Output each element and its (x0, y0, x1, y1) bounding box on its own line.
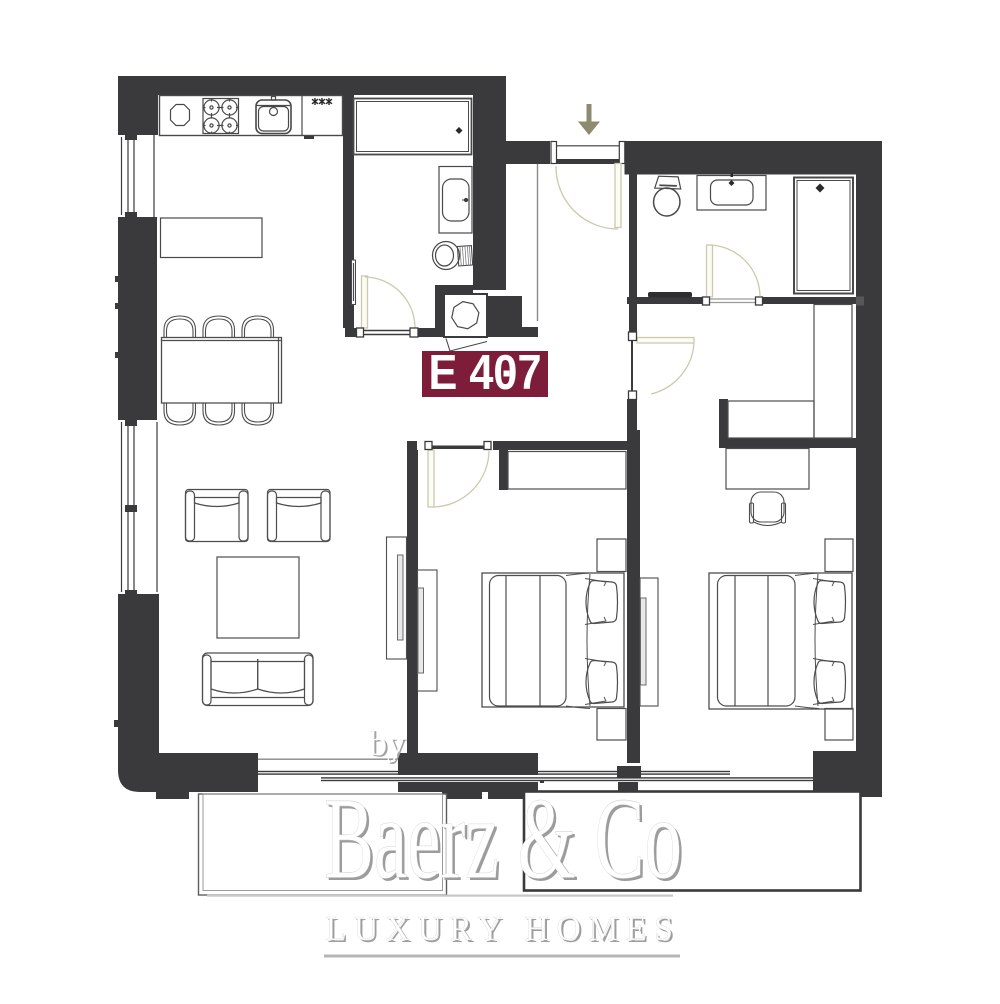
svg-text:Baerz & Co: Baerz & Co (324, 775, 682, 904)
svg-text:by: by (369, 723, 405, 763)
svg-text:LUXURY HOMES: LUXURY HOMES (326, 909, 681, 948)
svg-text:E 407: E 407 (429, 346, 542, 400)
